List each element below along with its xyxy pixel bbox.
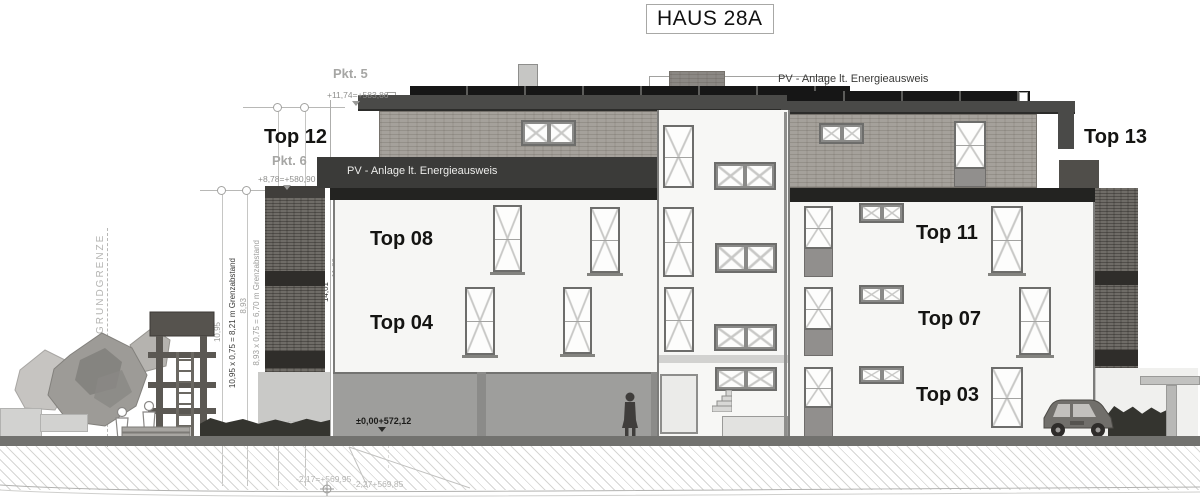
window (863, 289, 880, 300)
window-pair (715, 367, 777, 391)
label-top13: Top 13 (1084, 126, 1147, 149)
window (590, 207, 620, 273)
terrain-lines (0, 438, 1200, 500)
background-building-slab (1092, 350, 1138, 366)
label-pkt5: Pkt. 5 (333, 66, 368, 81)
entrance-steps (712, 390, 732, 412)
window (863, 207, 880, 219)
window-sill (587, 273, 623, 276)
window (884, 289, 901, 300)
window-sill (560, 354, 595, 357)
label-top07: Top 07 (918, 308, 981, 331)
window (465, 287, 495, 355)
level-marker (378, 427, 386, 432)
canopy-slab (659, 355, 788, 363)
window (991, 206, 1023, 273)
entrance-door (660, 374, 698, 434)
window (663, 207, 694, 277)
window (663, 125, 694, 188)
balcony-panel (954, 169, 986, 187)
window (884, 207, 901, 219)
pv-band-label: PV - Anlage lt. Energieausweis (347, 165, 662, 177)
window (718, 328, 744, 347)
pv-roof-label: PV - Anlage lt. Energieausweis (778, 73, 928, 85)
level-ground-floor: ±0,00+572,12 (356, 416, 411, 426)
window (718, 166, 743, 186)
dimension-marker (273, 103, 282, 112)
window-pair (819, 123, 864, 144)
garage-pier (477, 372, 486, 437)
dimension-line (200, 190, 268, 191)
window-sill (988, 273, 1026, 276)
window (991, 367, 1023, 428)
window-sill (462, 355, 498, 358)
window-pair (859, 203, 904, 223)
window (719, 371, 744, 387)
window (823, 127, 840, 140)
person (616, 392, 644, 442)
slab-edge-left (330, 188, 662, 200)
window (954, 121, 986, 169)
roof-right (781, 101, 1075, 114)
window (563, 287, 592, 354)
pergola-beam (1140, 376, 1200, 385)
window-pair (859, 366, 904, 384)
window (804, 287, 833, 330)
window (804, 367, 833, 408)
window-pair (714, 162, 776, 190)
retaining-wall (40, 414, 88, 432)
drawing-title: HAUS 28A (646, 4, 774, 34)
label-top04: Top 04 (370, 312, 433, 335)
window (748, 371, 773, 387)
background-building-slab (1092, 271, 1138, 285)
entrance-low-wall (722, 416, 788, 437)
balcony-panel (804, 408, 833, 437)
window (525, 124, 547, 142)
balcony-panel (804, 330, 833, 356)
window-sill (490, 272, 525, 275)
window (748, 247, 773, 269)
roof-fascia-right (1058, 101, 1074, 149)
pv-panels-right (787, 91, 1030, 101)
level-roof-top: +11,74=+583,86 (327, 90, 389, 100)
window (664, 287, 694, 352)
window-sill (1016, 355, 1054, 358)
balcony-panel (804, 249, 833, 277)
level-attic-top: +8,78=+580,90 (258, 174, 315, 184)
label-top08: Top 08 (370, 228, 433, 251)
car (1040, 392, 1118, 438)
window (748, 328, 774, 347)
play-tower (148, 312, 216, 438)
level-excavation-1: -2,17=+569,95 (296, 474, 351, 484)
survey-marker (320, 482, 334, 496)
background-building-slab (265, 271, 325, 286)
window (1019, 287, 1051, 355)
level-excavation-2: -2,27+569,85 (353, 479, 403, 489)
level-marker (283, 185, 291, 190)
level-marker (352, 101, 360, 106)
label-top11: Top 11 (916, 222, 978, 245)
pergola-post (1166, 385, 1177, 437)
dimension-marker (242, 186, 251, 195)
label-top12: Top 12 (264, 126, 327, 149)
window-pair (521, 120, 576, 146)
window (719, 247, 744, 269)
dimension-marker (217, 186, 226, 195)
downpipe (784, 112, 787, 437)
window (844, 127, 861, 140)
background-building-slab (265, 186, 325, 198)
slab-edge-right (788, 188, 1095, 202)
window (551, 124, 573, 142)
window-pair (715, 243, 777, 273)
window (493, 205, 522, 272)
pv-band: PV - Anlage lt. Energieausweis (317, 157, 662, 188)
window (863, 370, 880, 380)
elevation-drawing: HAUS 28A GRUNDGRENZE 10,95 10,95 x 0,75 … (0, 0, 1200, 500)
window-pair (859, 285, 904, 304)
window (804, 206, 833, 249)
dimension-marker (300, 103, 309, 112)
label-top03: Top 03 (916, 384, 979, 407)
window-pair (714, 324, 777, 351)
window (747, 166, 772, 186)
label-pkt6: Pkt. 6 (272, 153, 307, 168)
retaining-wall (0, 408, 42, 437)
window (884, 370, 901, 380)
